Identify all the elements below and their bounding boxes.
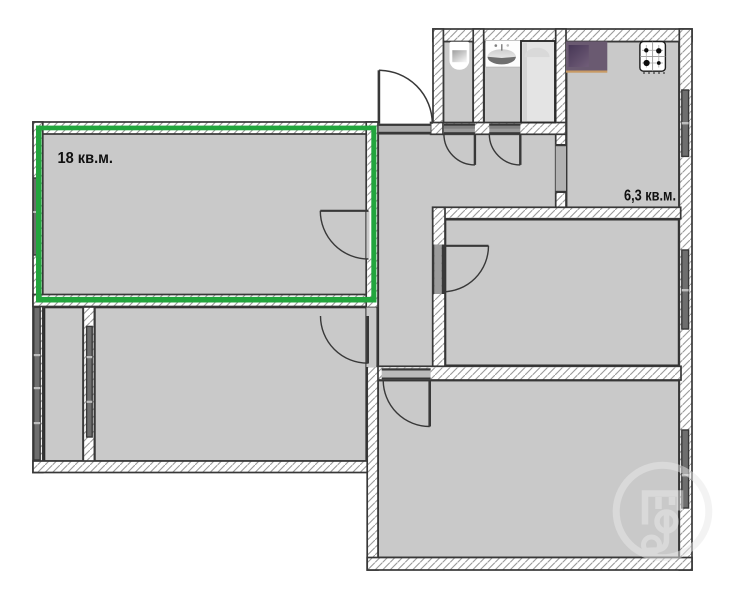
svg-text:6,3 кв.м.: 6,3 кв.м. [624,188,676,205]
svg-text:18 кв.м.: 18 кв.м. [58,150,114,167]
